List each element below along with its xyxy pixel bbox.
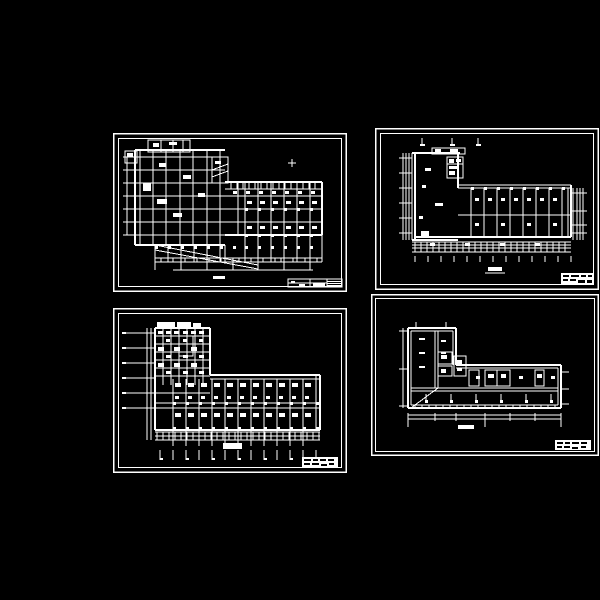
drawing-sheet-1[interactable]: [113, 133, 347, 292]
plan-geometry: [399, 138, 587, 262]
plan-geometry: [123, 140, 322, 270]
drawing-caption: [223, 443, 242, 449]
cad-model-space-canvas[interactable]: [0, 0, 600, 600]
sheet-1-floor-plan-canvas: [113, 133, 347, 292]
drawing-sheet-2[interactable]: [375, 128, 599, 290]
sheet-4-roof-plan-canvas: [371, 294, 599, 456]
sheet-2-floor-plan-canvas: [375, 128, 599, 290]
drawing-caption: [213, 276, 225, 279]
title-block: [288, 279, 342, 287]
drawing-caption: [458, 425, 474, 429]
drawing-sheet-4[interactable]: [371, 294, 599, 456]
drawing-sheet-3[interactable]: [113, 308, 347, 473]
plan-geometry: [122, 322, 320, 460]
sheet-3-floor-plan-canvas: [113, 308, 347, 473]
plan-geometry: [399, 322, 569, 427]
title-block: [555, 440, 591, 450]
drawing-caption: [485, 267, 505, 273]
title-block: [302, 457, 338, 467]
title-block: [561, 273, 594, 285]
